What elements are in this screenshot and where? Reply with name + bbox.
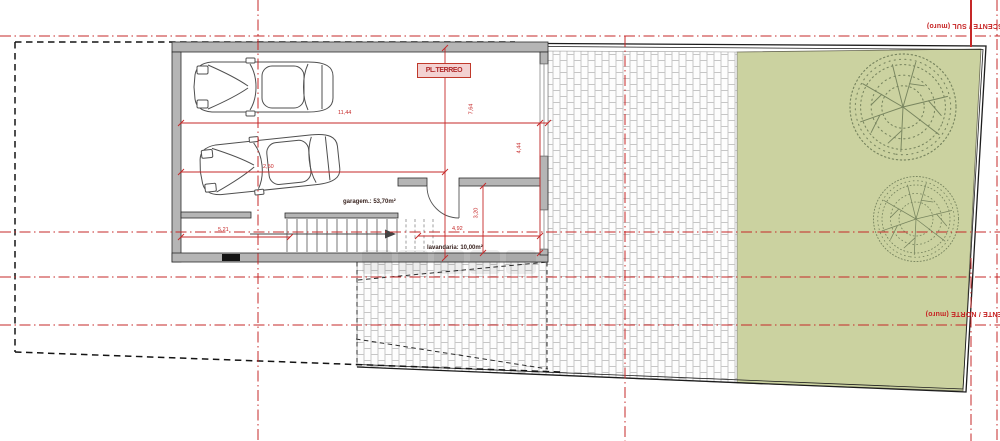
- staircase: [287, 219, 433, 252]
- laundry-room-label: lavandaria: 10,00m²: [427, 245, 483, 252]
- dim-laundry-depth: 3,20: [473, 208, 479, 219]
- garage-car-1: [194, 58, 333, 116]
- floor-plan-canvas: PL.TERREO garagem.: 53,70m² lavandaria: …: [0, 0, 1000, 441]
- boundary-label-north: OENTE / NORTE (muro): [888, 308, 1000, 319]
- dim-stair-width: 5,21: [218, 227, 229, 233]
- dim-car-bay: 2,50: [263, 164, 274, 170]
- garage-room-label: garagem.: 53,70m²: [343, 199, 396, 206]
- boundary-label-south: ASCENTE / SUL (muro): [884, 20, 1000, 31]
- laundry-door: [427, 186, 459, 218]
- dim-garage-width: 11,44: [338, 110, 351, 116]
- watermark: [362, 250, 536, 274]
- dim-laundry-width: 4,92: [452, 226, 463, 232]
- door-sill: [222, 254, 240, 261]
- room-stamp: PL.TERREO: [417, 63, 471, 78]
- dim-garage-depth: 7,64: [468, 104, 474, 115]
- dim-right-depth: 4,44: [516, 143, 522, 154]
- site-plan-drawing: [0, 0, 1000, 441]
